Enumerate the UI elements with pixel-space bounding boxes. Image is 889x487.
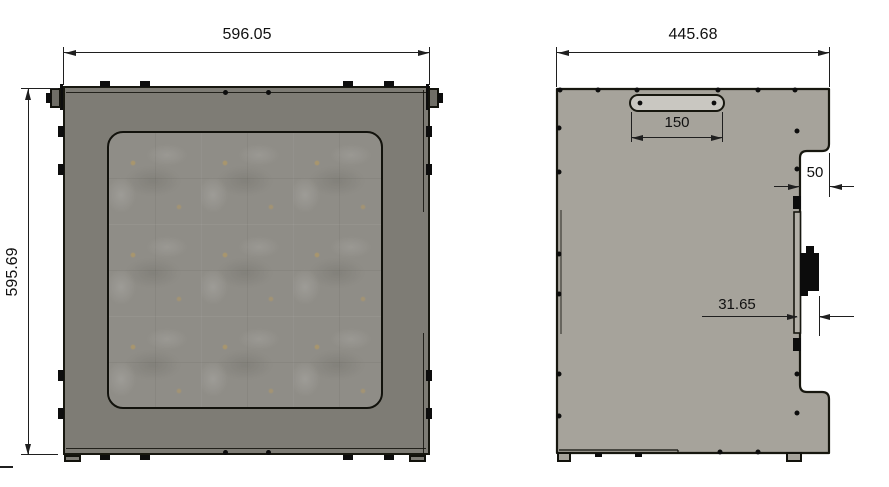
handle-plate xyxy=(630,95,724,111)
screw-dot xyxy=(635,88,640,93)
foot xyxy=(558,453,570,461)
connector-block xyxy=(800,253,819,291)
screw-dot xyxy=(756,450,761,455)
dim-arrow xyxy=(711,135,722,141)
side-panel-outline xyxy=(557,89,829,453)
dim-arrow xyxy=(787,314,798,320)
screw-dot xyxy=(718,450,723,455)
edge-tab xyxy=(595,453,602,457)
screw-dot xyxy=(557,252,562,257)
connector-tab xyxy=(806,246,814,254)
edge-clip xyxy=(793,196,801,209)
dim-line xyxy=(557,52,830,53)
dim-arrow xyxy=(818,50,829,56)
dim-arrow xyxy=(558,50,569,56)
dim-label-notch-depth: 50 xyxy=(799,164,831,181)
foot xyxy=(787,453,801,461)
dim-line xyxy=(631,137,723,138)
screw-dot xyxy=(716,88,721,93)
dim-label-connector-offset: 31.65 xyxy=(700,296,774,313)
dim-arrow xyxy=(831,184,842,190)
screw-dot xyxy=(557,126,562,131)
handle-screw xyxy=(638,101,643,106)
screw-dot xyxy=(557,372,562,377)
dim-arrow xyxy=(788,184,799,190)
dim-label-handle-width: 150 xyxy=(651,114,703,131)
dim-ext-line xyxy=(829,47,830,87)
screw-dot xyxy=(596,88,601,93)
handle-screw xyxy=(712,101,717,106)
technical-drawing-canvas: 596.05 595.69 xyxy=(0,0,889,487)
screw-dot xyxy=(795,411,800,416)
dim-arrow xyxy=(819,314,830,320)
dim-leader-line xyxy=(702,316,797,317)
screw-dot xyxy=(557,292,562,297)
dim-label-side-width: 445.68 xyxy=(643,26,743,44)
screw-dot xyxy=(558,88,563,93)
screw-dot xyxy=(793,88,798,93)
dim-arrow xyxy=(632,135,643,141)
edge-tab xyxy=(635,453,642,457)
screw-dot xyxy=(557,170,562,175)
screw-dot xyxy=(795,129,800,134)
side-view-svg xyxy=(0,0,889,487)
screw-dot xyxy=(795,372,800,377)
edge-clip xyxy=(793,338,801,351)
screw-dot xyxy=(557,414,562,419)
screw-dot xyxy=(756,88,761,93)
connector-tab xyxy=(800,288,808,296)
dim-ext-line xyxy=(556,47,557,87)
